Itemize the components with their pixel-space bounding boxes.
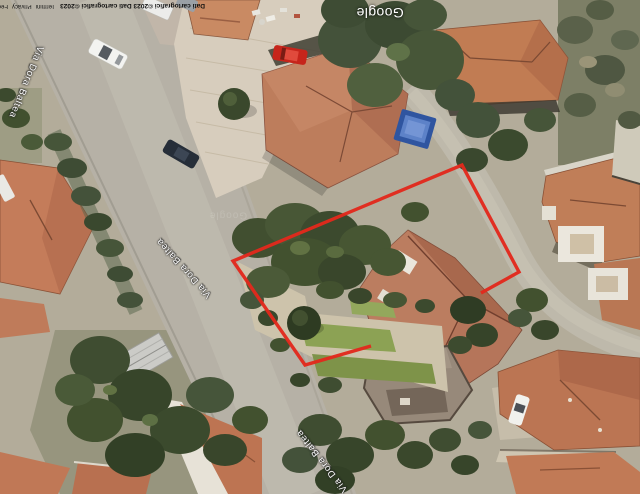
white-wall-right (612, 120, 640, 184)
satellite-map-canvas[interactable]: Google Via Dora Baltea Via Dora Baltea V… (0, 0, 640, 494)
google-watermark[interactable]: Google (356, 5, 404, 21)
building-roof-left-partial (0, 298, 50, 338)
attribution-link-privacy[interactable]: Privacy (12, 0, 32, 9)
satellite-imagery (0, 0, 640, 494)
attribution-link-feedback[interactable]: Feedback (0, 0, 8, 9)
attribution-links: Termini Privacy Feedback (1, 0, 55, 9)
attribution-link-terms[interactable]: Termini (36, 0, 55, 9)
building-roof-topleft (186, 0, 260, 40)
